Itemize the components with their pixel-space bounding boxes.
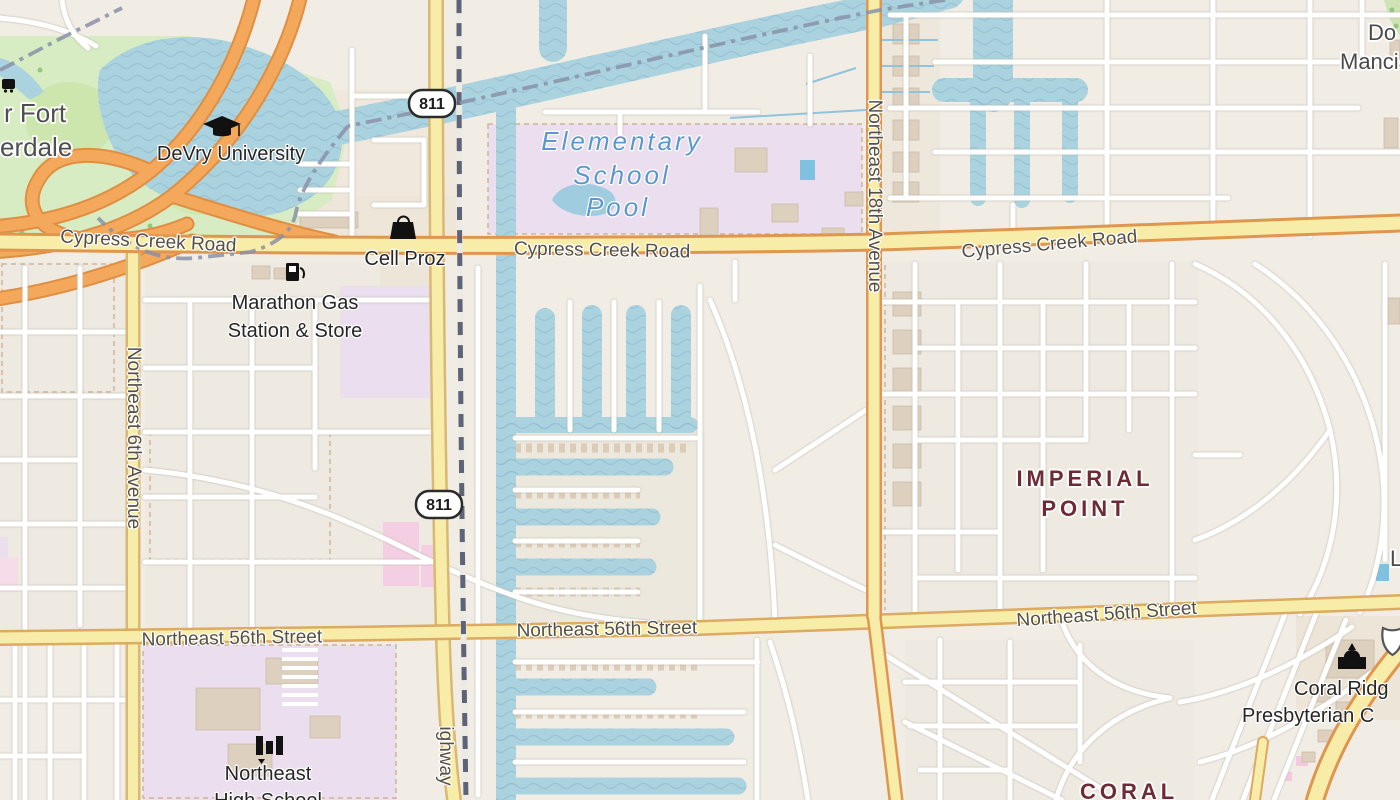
park-label-fragment-line2: Manci [1340, 49, 1399, 74]
park-label-fragment-line1: Do [1368, 20, 1396, 45]
route-shield-label: 811 [419, 96, 445, 113]
route-shield-811-north: 811 [409, 90, 455, 117]
poi-label-marathon-line1: Marathon Gas [232, 292, 359, 314]
map-canvas[interactable]: 811 811 r Fort erdale DeVry University C… [0, 0, 1400, 800]
poi-label-devry: DeVry University [157, 143, 305, 165]
water-label-elementary-line2: School [573, 160, 671, 190]
water-label-elementary-line3: Pool [586, 192, 650, 222]
route-shield-811-south: 811 [416, 491, 462, 518]
poi-label-cell-proz: Cell Proz [364, 248, 445, 270]
water-label-elementary-line1: Elementary [541, 126, 703, 156]
poi-label-ne-high-line2: High School [214, 790, 322, 800]
road-label-ne-6th-avenue: Northeast 6th Avenue [123, 347, 144, 529]
neighborhood-label-imperial-line1: IMPERIAL [1016, 466, 1153, 491]
road-label-dixie-highway-fragment: ighway [435, 726, 456, 786]
road-label-cypress-mid: Cypress Creek Road [514, 238, 691, 262]
city-label-fragment-line1: r Fort [4, 98, 67, 128]
neighborhood-label-coral-fragment: CORAL [1080, 779, 1178, 800]
poi-label-marathon-line2: Station & Store [228, 320, 363, 342]
road-label-ne56-west: Northeast 56th Street [141, 626, 323, 650]
poi-label-ne-high-line1: Northeast [225, 763, 312, 785]
poi-label-coral-ridge-line1: Coral Ridg [1294, 678, 1388, 700]
parking-stripes [282, 650, 318, 704]
right-edge-label-fragment: L [1390, 546, 1400, 571]
road-label-ne56-mid: Northeast 56th Street [516, 617, 698, 641]
neighborhood-label-imperial-line2: POINT [1041, 496, 1128, 521]
road-label-ne-18th-avenue: Northeast 18th Avenue [864, 100, 885, 293]
city-label-fragment-line2: erdale [0, 132, 72, 162]
route-shield-label: 811 [426, 497, 452, 514]
poi-label-coral-ridge-line2: Presbyterian C [1242, 705, 1374, 727]
